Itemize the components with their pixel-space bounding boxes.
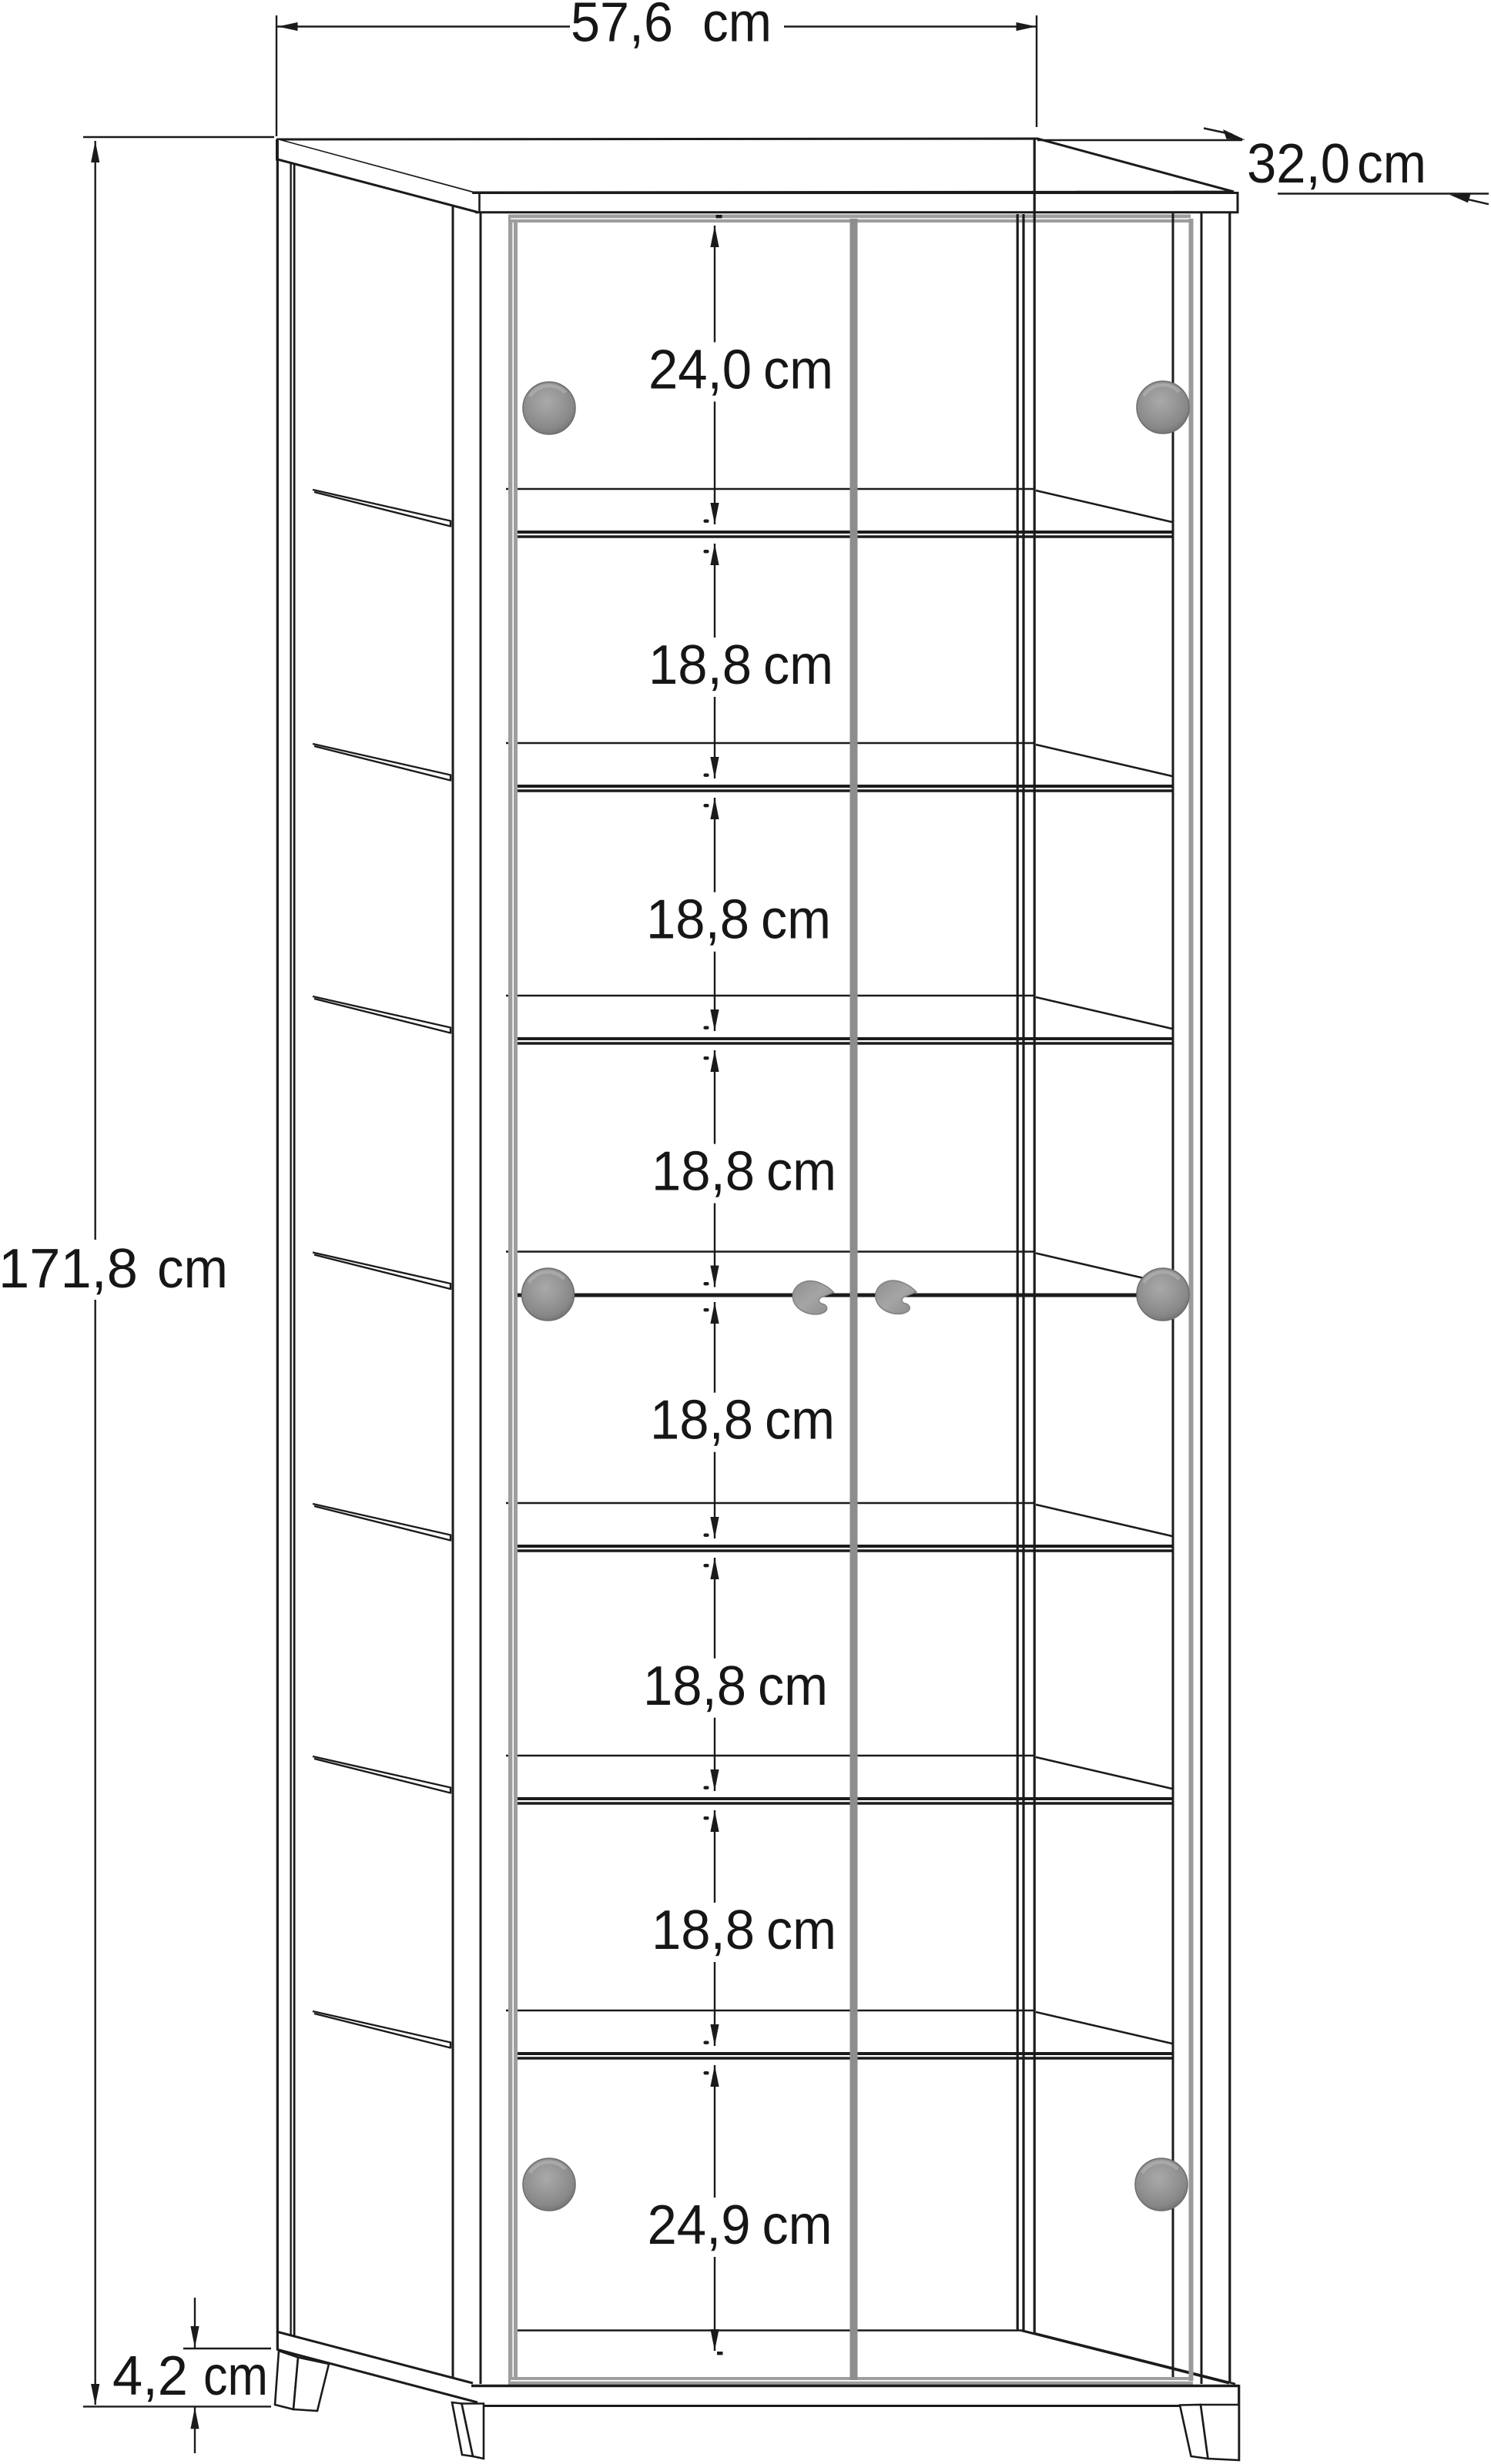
svg-text:4,2: 4,2 — [112, 2345, 188, 2407]
svg-text:cm: cm — [766, 1141, 836, 1203]
svg-text:18,8: 18,8 — [646, 889, 749, 951]
svg-text:cm: cm — [203, 2345, 268, 2407]
svg-text:cm: cm — [1357, 133, 1426, 195]
svg-text:cm: cm — [763, 634, 833, 696]
svg-text:cm: cm — [761, 889, 831, 951]
svg-text:cm: cm — [157, 1238, 228, 1300]
svg-text:cm: cm — [758, 1655, 828, 1717]
svg-text:24,0: 24,0 — [648, 340, 752, 401]
svg-text:18,8: 18,8 — [648, 634, 752, 696]
svg-text:18,8: 18,8 — [643, 1655, 746, 1717]
svg-text:cm: cm — [766, 1900, 836, 1961]
svg-text:cm: cm — [762, 2194, 833, 2256]
svg-text:18,8: 18,8 — [652, 1900, 755, 1961]
svg-text:cm: cm — [765, 1390, 835, 1451]
svg-text:18,8: 18,8 — [652, 1141, 755, 1203]
svg-text:32,0: 32,0 — [1247, 133, 1350, 195]
svg-text:cm: cm — [763, 340, 833, 401]
svg-text:cm: cm — [702, 0, 772, 54]
svg-text:18,8: 18,8 — [650, 1390, 753, 1451]
svg-text:57,6: 57,6 — [571, 0, 673, 54]
svg-text:24,9: 24,9 — [648, 2194, 751, 2256]
svg-text:171,8: 171,8 — [0, 1238, 138, 1300]
